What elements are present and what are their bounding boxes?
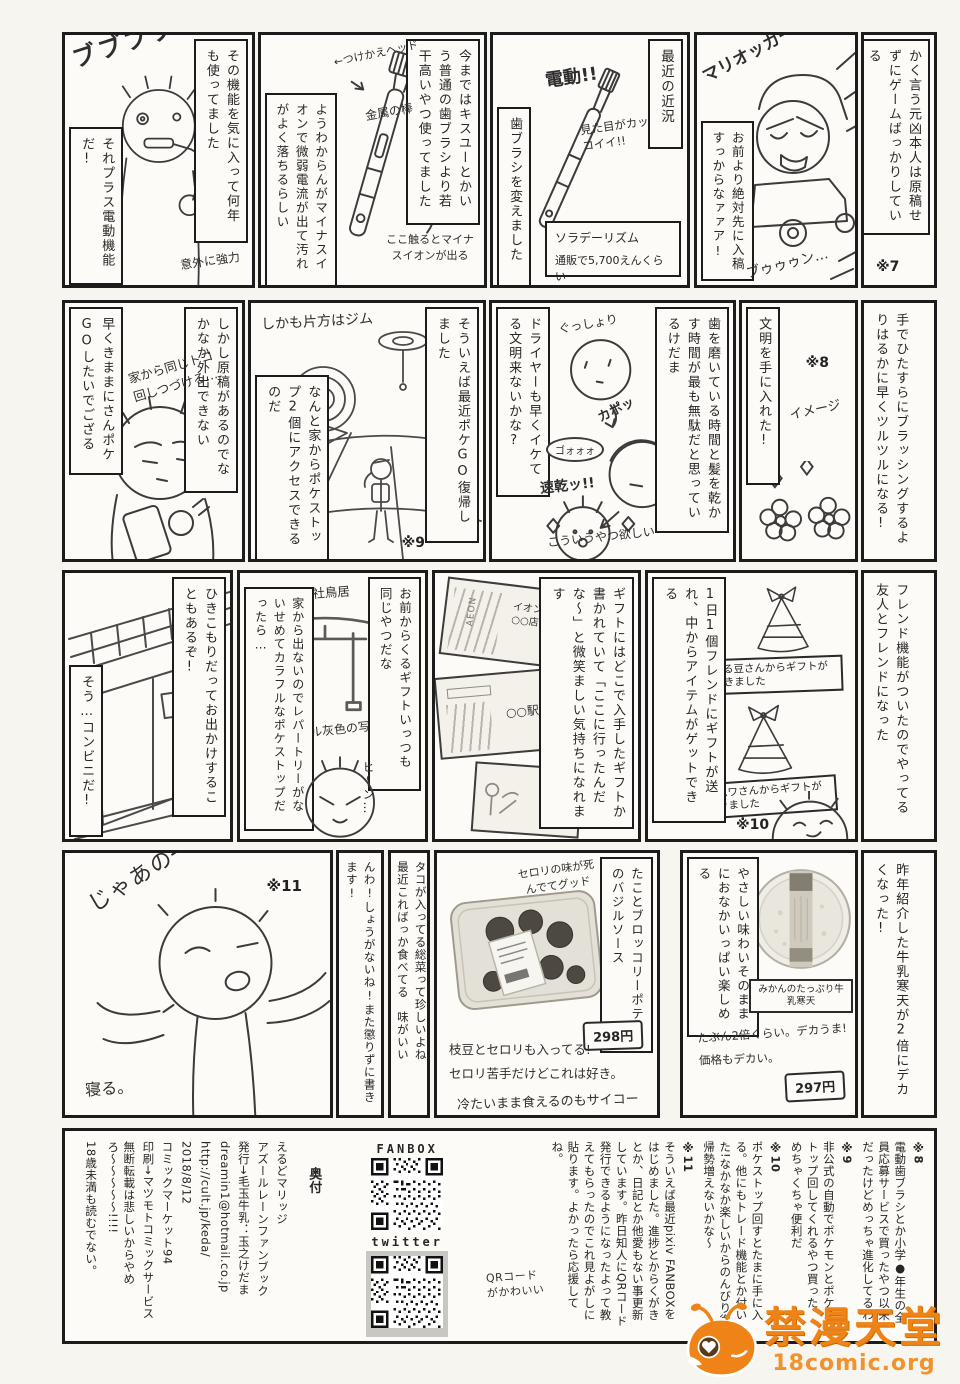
panel-r1-brushing: その機能を気に入って何年も使ってました それプラス電動機能だ! ブブブブブ 意外…: [62, 32, 255, 288]
panel-r3-torii: ○○神社鳥居 オール灰色の写真 お前からくるギフトいっつも同じやつだな 家から出…: [237, 570, 428, 842]
gift-photo-station: ○○駅: [434, 668, 555, 760]
caption-want-walk: 早くきままにさんポケGOしたいでござる: [69, 307, 123, 475]
book-subtitle: アズールレーンファンブック: [255, 1141, 271, 1331]
caption-brush-changed: 歯ブラシを変えました: [497, 107, 531, 287]
mascot-icon: [682, 1302, 760, 1380]
narration-text: 昨年紹介した牛乳寒天が2倍にデカくなった!: [864, 853, 916, 1115]
email-line: dreamin1@hotmail.co.jp: [217, 1141, 233, 1331]
event-line: コミックマーケット94: [159, 1141, 175, 1331]
kanten-note-2: 価格もデカい。: [699, 1050, 780, 1069]
panel-r2-bunmei: 文明を手に入れた! ※8 イメージ: [739, 300, 858, 562]
panel-r1-kinkyo: 最近の近況 電動!! 見た目がカッコイイ!! 歯ブラシを変えました ソラデーリズ…: [490, 32, 690, 288]
qr-area: FANBOX twitter: [336, 1141, 478, 1331]
narration-text: もっといろいろ紹介したいけどページ足りんわ!しょうがないね!また懲りずに書きます…: [339, 853, 384, 1115]
narration-text: かく言う元凶本人は原稿せずにゲームばっかりしている: [861, 41, 928, 233]
milk-kanten-photo: [749, 867, 853, 971]
date-line: 2018/8/12: [178, 1141, 194, 1331]
panel-r3-photos: AEON イオン○○店 ○○駅 ○○公園 ギフトにはどこで入手したギフトか書かれ…: [432, 570, 641, 842]
caption-hikikomori-out: ひきこもりだってお出かけすることもあるぞ!: [172, 577, 226, 817]
panel-r2-aside: 手でひたすらにブラッシングするよりはるかに早くツルツルになる!: [861, 300, 937, 562]
narration-text: 手でひたすらにブラッシングするよりはるかに早くツルツルになる!: [864, 303, 916, 559]
caption-pokego-return: そういえば最近ポケGO復帰しました: [425, 307, 479, 543]
label-touch-ion: ここ触るとマイナスイオンが出る: [382, 231, 478, 263]
fanbox-qr-code: [371, 1158, 443, 1230]
panel-r1-aside: かく言う元凶本人は原稿せずにゲームばっかりしている ※7: [861, 32, 937, 288]
caption-minus-ion: ようわからんがマイナスイオンで微弱電流が出て汚れがよく落ちるらしい: [265, 93, 337, 287]
speech-box: お前より絶対先に入稿すっからなァァア!: [701, 121, 754, 281]
photo-label: ○○駅: [505, 703, 539, 721]
gift-parcel-drawing: [734, 581, 829, 659]
kanten-price: 297円: [784, 1070, 846, 1102]
fanbox-qr-label: FANBOX: [336, 1141, 478, 1158]
deli-tray-photo: [443, 879, 611, 1027]
website-line: http://cult.jp/keda/: [198, 1141, 214, 1331]
narration-box: かく言う元凶本人は原稿せずにゲームばっかりしている: [861, 39, 930, 235]
printer-line: 印刷→マツモトコミックサービス: [140, 1141, 156, 1331]
footnote-ref-10: ※10: [736, 817, 769, 833]
product-name: ソラデーリズム: [555, 229, 671, 246]
basil-note-2: セロリ苦手だけどこれは好き。: [449, 1063, 623, 1082]
narration-text: フレンド機能がついたのでやってる友人とフレンドになった: [864, 573, 916, 839]
basil-note-3: 冷たいまま食えるのもサイコー: [457, 1088, 639, 1113]
book-title: えるどマリッジ: [274, 1141, 290, 1331]
panel-r2-gym: しかも片方はジム そういえば最近ポケGO復帰しました なんと家からポケストップ2…: [248, 300, 486, 562]
narration-text: タコが入ってる総菜って珍しいよね 最近こればっか食べてる 味がいい: [391, 853, 430, 1115]
footnote-text: そういえば最近pixiv FANBOXをはじめました。進捗とからくがきとか、日記…: [549, 1141, 678, 1331]
panel-r4-basil: セロリの味が死んでてグッド たことブロッコリーポテトのバジルソース 298円 枝…: [434, 850, 660, 1118]
caption-years-used: その機能を気に入って何年も使ってました: [194, 39, 248, 243]
panel-r3-konbini: ひきこもりだってお出かけすることもあるぞ! そう…コンビニだ!: [62, 570, 233, 842]
caption-two-pokestops: なんと家からポケストップ2個にアクセスできるのだ: [255, 375, 329, 561]
caption-gift-location: ギフトにはどこで入手したギフトか書かれていて「ここに行ったんだな〜」と微笑ましい…: [539, 577, 634, 829]
panel-r1-brush-diagram: 今まではキスユーとかいう普通の歯ブラシより若干高いやつ使ってました ようわからん…: [258, 32, 487, 288]
station-sign-shape: [447, 685, 492, 699]
panel-r2-phone: しかし原稿があるのでなかなか外出できない 早くきままにさんポケGOしたいでござる…: [62, 300, 245, 562]
no-reprint-warning: 無断転載は悲しいからやめろ〜〜〜〜〜!!!!: [105, 1141, 137, 1331]
kanten-product-label: みかんのたっぷり牛乳寒天: [749, 979, 853, 1013]
tako-line-1: タコが入ってる総菜って珍しいよね: [411, 861, 429, 1107]
age-warning: 18歳未満も読むでない。: [83, 1141, 99, 1331]
tako-line-2: 最近こればっか食べてる 味がいい: [393, 861, 411, 1107]
caption-wasted-time: 歯を磨いている時間と髪を乾かす時間が最も無駄だと思っているけだま: [655, 307, 729, 533]
manga-afterword-page: かく言う元凶本人は原稿せずにゲームばっかりしている ※7 マリオッカートエェェイ…: [0, 0, 960, 1384]
product-note-box: ソラデーリズム 通販で5,700えんくらい: [545, 221, 681, 277]
caption-daily-gift: 1日1個フレンドにギフトが送れ、中からアイテムがゲットできる: [652, 577, 726, 823]
photo-texture: [446, 701, 494, 753]
product-price: 通販で5,700えんくらい: [555, 252, 671, 284]
park-doodle: [479, 774, 526, 827]
footnote-ref-8: ※8: [806, 355, 829, 371]
panel-r2-dryer: 歯を磨いている時間と髪を乾かす時間が最も無駄だと思っているけだま ドライヤーも早…: [489, 300, 736, 562]
gift-parcel-drawing: [716, 699, 811, 781]
panel-r4-tako: タコが入ってる総菜って珍しいよね 最近こればっか食べてる 味がいい: [388, 850, 430, 1118]
caption-kiss-you: 今まではキスユーとかいう普通の歯ブラシより若干高いやつ使ってました: [406, 39, 480, 225]
panel-r4-more: もっといろいろ紹介したいけどページ足りんわ!しょうがないね!また懲りずに書きます…: [336, 850, 384, 1118]
twitter-qr-label: twitter: [336, 1234, 478, 1251]
footnote-ref-11: ※11: [267, 877, 302, 895]
caption-cant-go-out: しかし原稿があるのでなかなか外出できない: [184, 307, 238, 493]
peeking-face-drawing: [767, 791, 853, 839]
caption-dryer-wish: ドライヤーも早くイケてる文明来ないかな?: [496, 307, 550, 497]
caption-konbini: そう…コンビニだ!: [69, 665, 103, 837]
watermark-site-name: 禁漫天堂: [764, 1306, 944, 1350]
sleep-fx: 寝る。: [84, 1073, 134, 1100]
gift-toast-1: える豆さんからギフトが届きました: [706, 655, 843, 696]
panel-r3-gifts: える豆さんからギフトが届きました ワムワさんからギフトが届きました 1日1個フレ…: [645, 570, 858, 842]
site-watermark: 禁漫天堂 18comic.org: [682, 1298, 950, 1384]
footnote-11: ※11 そういえば最近pixiv FANBOXをはじめました。進捗とからくがきと…: [549, 1141, 696, 1331]
footnote-ref-9: ※9: [402, 535, 425, 551]
panel-r3-aside: フレンド機能がついたのでやってる友人とフレンドになった: [861, 570, 937, 842]
panel-r1-kart: マリオッカートエェェイッ!! お前より絶対先に入稿すっからなァァア! ブゥゥゥン…: [694, 32, 858, 288]
qr-cute-note: QRコードがかわいい: [477, 1139, 550, 1302]
watermark-text: 禁漫天堂 18comic.org: [764, 1306, 944, 1375]
twitter-qr-code: [371, 1256, 443, 1328]
panel-r4-bye: じゃあの─ ※11 寝る。: [62, 850, 333, 1118]
panel-r4-kanten: やさしい味わいそのままにおなかいっぱい楽しめる みかんのたっぷり牛乳寒天 たぶん…: [680, 850, 858, 1118]
footnote-ref-7: ※7: [876, 259, 899, 275]
watermark-site-url: 18comic.org: [764, 1351, 944, 1376]
caption-civilization: 文明を手に入れた!: [746, 307, 780, 485]
twitter-qr-frame: [366, 1251, 448, 1337]
publisher-line: 発行→毛玉牛乳：玉之けだま: [236, 1141, 252, 1331]
whine-fx: ヒ〜ン…: [358, 761, 377, 825]
blow-fx: ゴォォォ: [546, 437, 604, 462]
okuzuke-title: 奥付: [304, 1141, 322, 1331]
basil-price: 298円: [582, 1020, 643, 1051]
caption-plus-electric: それプラス電動機能だ!: [69, 127, 123, 285]
basil-note-1: 枝豆とセロリも入ってる!: [449, 1039, 591, 1058]
panel-r4-aside: 昨年紹介した牛乳寒天が2倍にデカくなった!: [861, 850, 937, 1118]
image-note: イメージ: [788, 394, 843, 423]
